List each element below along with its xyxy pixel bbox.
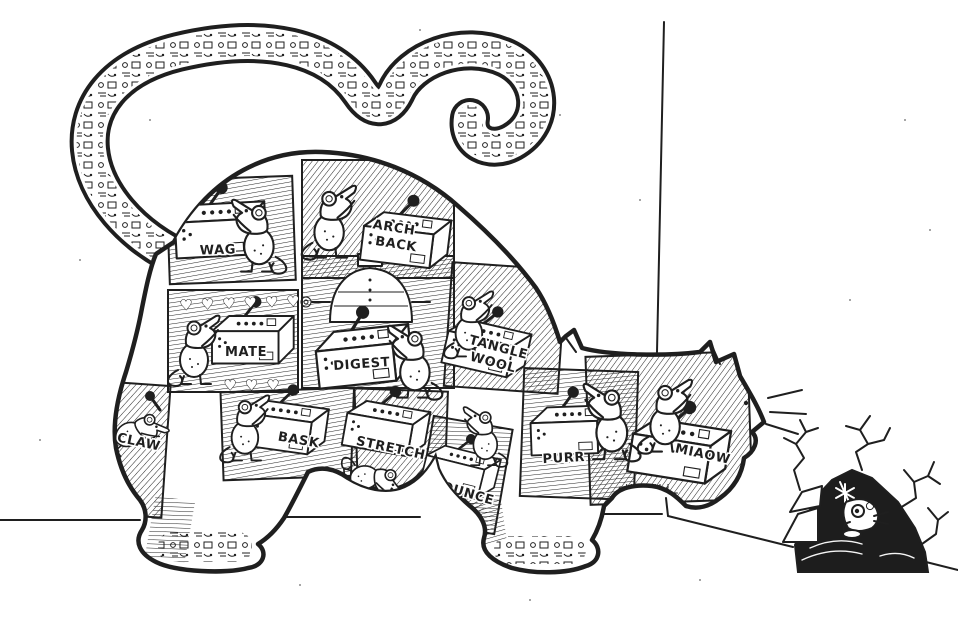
mate-label: MATE [225,345,267,360]
illustration-canvas: ♥ ♥ ♥ ♥ ♥ ♥ ♥ ♥ ♥ WAG ARCH BACK MATE DIG… [0,0,958,618]
wag-label: WAG [199,242,236,258]
hole-mouse-eye [855,509,859,513]
front-paw-doodles [494,536,586,564]
hearts-row-bottom: ♥ ♥ ♥ [224,378,281,394]
cat-eye [744,401,748,405]
rear-paw-doodles [158,532,252,562]
purr-label: PURR [542,450,585,467]
cartoon-cat-machine-illustration: ♥ ♥ ♥ ♥ ♥ ♥ ♥ ♥ ♥ WAG ARCH BACK MATE DIG… [0,0,958,618]
